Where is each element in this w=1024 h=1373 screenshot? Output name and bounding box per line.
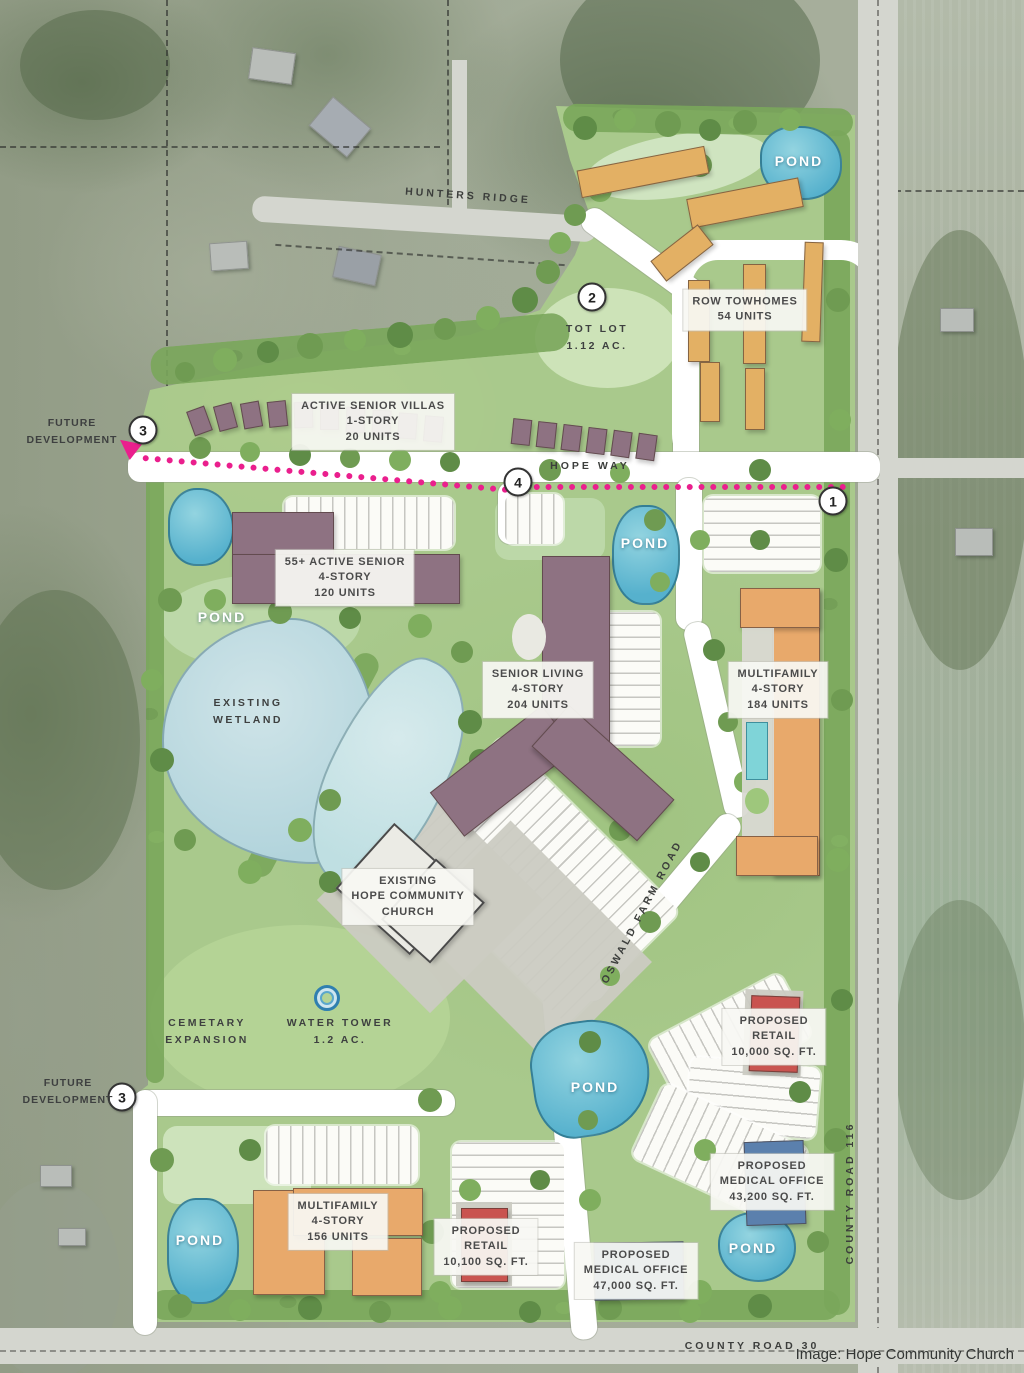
pond-label-south-central: POND	[571, 1079, 619, 1095]
marker-1-number: 1	[829, 493, 837, 509]
multifamily-184-patio	[745, 788, 769, 814]
retail10000-line2: RETAIL	[731, 1029, 816, 1044]
retail10100-line1: PROPOSED	[443, 1224, 528, 1239]
row-townhomes-line2: 54 UNITS	[692, 310, 797, 325]
house	[248, 47, 296, 85]
building-multifamily-184	[740, 588, 820, 628]
phasing-route-east	[522, 484, 846, 490]
retail10100-line2: RETAIL	[443, 1239, 528, 1254]
hope-way-east-ext	[880, 458, 1024, 478]
pond-label-west: POND	[198, 609, 246, 625]
marker-2-number: 2	[588, 289, 596, 305]
cemetary-expansion-label: CEMETARY EXPANSION	[165, 1015, 249, 1049]
multifamily-184-pool	[746, 722, 768, 780]
mf156-line3: 156 UNITS	[298, 1230, 379, 1245]
future-dev-line2: DEVELOPMENT	[27, 432, 118, 449]
wetland-line1: EXISTING	[213, 695, 283, 712]
county-road-116-centerline	[877, 0, 879, 1373]
marker-4-number: 4	[514, 474, 522, 490]
tot-lot-line1: TOT LOT	[566, 321, 628, 338]
villa	[536, 421, 558, 449]
row-townhomes-label: ROW TOWHOMES 54 UNITS	[683, 290, 806, 331]
villas-line2: 1-STORY	[301, 414, 445, 429]
water-tower-icon	[314, 985, 340, 1011]
marker-1: 1	[819, 487, 848, 516]
parcel-line	[447, 0, 449, 205]
pond-west	[168, 488, 234, 566]
pond-label-sw: POND	[176, 1232, 224, 1248]
pond-label-hope: POND	[621, 535, 669, 551]
mf156-line1: MULTIFAMILY	[298, 1199, 379, 1214]
retail10100-line3: 10,100 SQ. FT.	[443, 1255, 528, 1270]
parcel-line	[166, 0, 168, 386]
senior55-line2: 4-STORY	[285, 570, 405, 585]
mf184-line2: 4-STORY	[738, 682, 819, 697]
med47000-line3: 47,000 SQ. FT.	[584, 1279, 689, 1294]
mf184-line1: MULTIFAMILY	[738, 667, 819, 682]
multifamily-156-label: MULTIFAMILY 4-STORY 156 UNITS	[289, 1194, 388, 1250]
south-entry-road	[135, 1090, 455, 1116]
med43200-line1: PROPOSED	[720, 1159, 825, 1174]
med43200-line3: 43,200 SQ. FT.	[720, 1190, 825, 1205]
villas-line1: ACTIVE SENIOR VILLAS	[301, 399, 445, 414]
med47000-line1: PROPOSED	[584, 1248, 689, 1263]
parking-multifamily-south	[266, 1126, 418, 1184]
water-tower-line1: WATER TOWER	[287, 1015, 393, 1032]
building-multifamily-184	[736, 836, 818, 876]
active-senior-villas-label: ACTIVE SENIOR VILLAS 1-STORY 20 UNITS	[292, 394, 454, 450]
senior-living-court	[512, 614, 546, 660]
house	[58, 1228, 86, 1246]
villa	[560, 424, 582, 452]
senior55-line1: 55+ ACTIVE SENIOR	[285, 555, 405, 570]
future-dev-line2: DEVELOPMENT	[23, 1092, 114, 1109]
pond-label-ne: POND	[775, 153, 823, 169]
tree-cluster-photo	[895, 900, 1024, 1200]
retail10000-line3: 10,000 SQ. FT.	[731, 1045, 816, 1060]
pond-label-se: POND	[729, 1240, 777, 1256]
mf156-line2: 4-STORY	[298, 1214, 379, 1229]
church-line1: EXISTING	[351, 874, 464, 889]
wetland-label: EXISTING WETLAND	[213, 695, 283, 729]
road-label-county-116: COUNTY ROAD 116	[844, 1122, 856, 1265]
house	[209, 241, 249, 272]
senior-living-line3: 204 UNITS	[492, 698, 584, 713]
church-line3: CHURCH	[351, 905, 464, 920]
villa	[511, 418, 533, 446]
cemetary-line1: CEMETARY	[165, 1015, 249, 1032]
tot-lot-line2: 1.12 AC.	[566, 338, 628, 355]
medical-43200-label: PROPOSED MEDICAL OFFICE 43,200 SQ. FT.	[711, 1154, 834, 1210]
cemetary-line2: EXPANSION	[165, 1032, 249, 1049]
active-senior-55-label: 55+ ACTIVE SENIOR 4-STORY 120 UNITS	[276, 550, 414, 606]
house	[955, 528, 993, 556]
marker-3-number: 3	[118, 1089, 126, 1105]
row-townhomes-line1: ROW TOWHOMES	[692, 295, 797, 310]
multifamily-184-label: MULTIFAMILY 4-STORY 184 UNITS	[729, 662, 828, 718]
parcel-line	[0, 146, 440, 148]
villa	[585, 427, 607, 455]
future-development-south-label: FUTURE DEVELOPMENT	[23, 1075, 114, 1109]
mf184-line3: 184 UNITS	[738, 698, 819, 713]
pond-hope-way	[612, 505, 680, 605]
site-plan-map: 1 2 3 3 4 HUNTERS RIDGE HOPE WAY OSWALD …	[0, 0, 1024, 1373]
building-row-townhomes	[700, 362, 720, 422]
road-label-hope-way: HOPE WAY	[550, 460, 630, 472]
marker-4: 4	[504, 468, 533, 497]
parking-multifamily-north	[704, 496, 820, 572]
parcel-line	[895, 190, 1024, 192]
building-multifamily-184	[772, 588, 820, 876]
retail-10100-label: PROPOSED RETAIL 10,100 SQ. FT.	[434, 1219, 537, 1275]
water-tower-label: WATER TOWER 1.2 AC.	[287, 1015, 393, 1049]
med43200-line2: MEDICAL OFFICE	[720, 1174, 825, 1189]
medical-47000-label: PROPOSED MEDICAL OFFICE 47,000 SQ. FT.	[575, 1243, 698, 1299]
villa	[267, 400, 289, 428]
pond-southwest	[167, 1198, 239, 1304]
med47000-line2: MEDICAL OFFICE	[584, 1263, 689, 1278]
future-development-north-label: FUTURE DEVELOPMENT	[27, 415, 118, 449]
water-tower-line2: 1.2 AC.	[287, 1032, 393, 1049]
tree-cluster-photo	[20, 10, 170, 120]
villa	[610, 430, 632, 458]
senior-living-line1: SENIOR LIVING	[492, 667, 584, 682]
parking-hope-east	[505, 494, 563, 544]
house	[940, 308, 974, 332]
tot-lot-label: TOT LOT 1.12 AC.	[566, 321, 628, 355]
building-row-townhomes	[745, 368, 765, 430]
wetland-line2: WETLAND	[213, 712, 283, 729]
villa	[635, 433, 657, 461]
marker-3-number: 3	[139, 422, 147, 438]
marker-3-north: 3	[129, 416, 158, 445]
retail10000-line1: PROPOSED	[731, 1014, 816, 1029]
marker-2: 2	[578, 283, 607, 312]
west-boundary-road	[133, 1090, 157, 1335]
house	[40, 1165, 72, 1187]
senior55-line3: 120 UNITS	[285, 586, 405, 601]
tree-cluster-photo	[890, 230, 1024, 670]
image-credit: Image: Hope Community Church	[796, 1346, 1014, 1363]
existing-church-label: EXISTING HOPE COMMUNITY CHURCH	[342, 869, 473, 925]
senior-living-line2: 4-STORY	[492, 682, 584, 697]
future-dev-line1: FUTURE	[27, 415, 118, 432]
tree-strip-west-edge	[146, 468, 164, 1083]
villas-line3: 20 UNITS	[301, 430, 445, 445]
senior-living-label: SENIOR LIVING 4-STORY 204 UNITS	[483, 662, 593, 718]
church-line2: HOPE COMMUNITY	[351, 889, 464, 904]
retail-10000-label: PROPOSED RETAIL 10,000 SQ. FT.	[722, 1009, 825, 1065]
future-dev-line1: FUTURE	[23, 1075, 114, 1092]
driveway	[452, 60, 467, 210]
